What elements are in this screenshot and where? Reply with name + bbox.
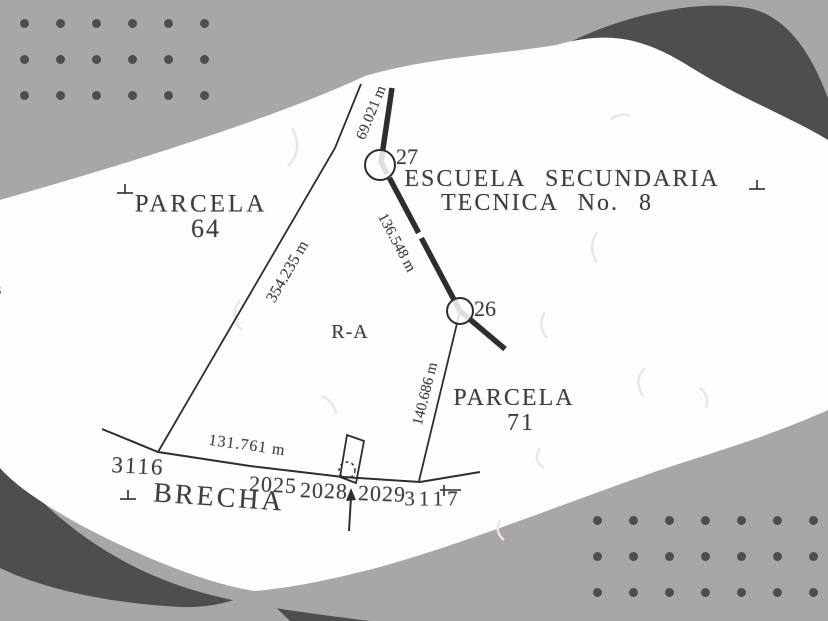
edge-text-fragment: s xyxy=(0,281,1,298)
dot xyxy=(200,55,209,64)
dot xyxy=(593,588,602,597)
dot xyxy=(629,552,638,561)
dot xyxy=(809,552,818,561)
dot xyxy=(629,588,638,597)
dot xyxy=(128,55,137,64)
dot xyxy=(92,91,101,100)
parcela-71-number: 71 xyxy=(507,411,535,435)
parcela-64-name: PARCELA xyxy=(135,192,268,217)
dot xyxy=(773,516,782,525)
dot xyxy=(773,552,782,561)
station-2025: 2025 xyxy=(248,473,297,497)
dot xyxy=(701,588,710,597)
dot xyxy=(20,19,29,28)
dot xyxy=(56,91,65,100)
dot xyxy=(593,516,602,525)
dot xyxy=(164,19,173,28)
station-2028: 2028 xyxy=(300,479,349,503)
parcela-71-name: PARCELA xyxy=(453,386,574,410)
dot xyxy=(737,588,746,597)
school-name-line2: TECNICA No. 8 xyxy=(441,191,653,215)
dot xyxy=(809,516,818,525)
dot xyxy=(737,552,746,561)
scanned-survey-plan-slide: PARCELA 64 ESCUELA SECUNDARIA TECNICA No… xyxy=(0,0,828,621)
dot xyxy=(773,588,782,597)
station-2029: 2029 xyxy=(358,482,407,506)
parcela-64-number: 64 xyxy=(191,216,221,242)
dot xyxy=(164,91,173,100)
dot xyxy=(629,516,638,525)
station-3117: 3117 xyxy=(404,489,461,510)
vertex-27-circle xyxy=(365,150,395,180)
dot xyxy=(56,19,65,28)
dot xyxy=(665,552,674,561)
dot xyxy=(20,55,29,64)
area-code-label: R-A xyxy=(331,322,368,342)
dot xyxy=(809,588,818,597)
dot xyxy=(665,588,674,597)
dot xyxy=(200,19,209,28)
dot xyxy=(92,55,101,64)
dot xyxy=(665,516,674,525)
dot xyxy=(737,516,746,525)
plan-graphics xyxy=(0,0,828,621)
dot xyxy=(128,19,137,28)
vertex-26-circle xyxy=(447,298,473,324)
dot xyxy=(200,91,209,100)
vertex-27-label: 27 xyxy=(396,146,418,168)
dot xyxy=(20,91,29,100)
dot xyxy=(56,55,65,64)
station-3116: 3116 xyxy=(111,453,165,479)
dot xyxy=(164,55,173,64)
dot xyxy=(701,552,710,561)
dot xyxy=(92,19,101,28)
dot xyxy=(701,516,710,525)
dot xyxy=(128,91,137,100)
dot xyxy=(593,552,602,561)
school-name-line1: ESCUELA SECUNDARIA xyxy=(404,167,719,191)
vertex-26-label: 26 xyxy=(474,298,496,320)
